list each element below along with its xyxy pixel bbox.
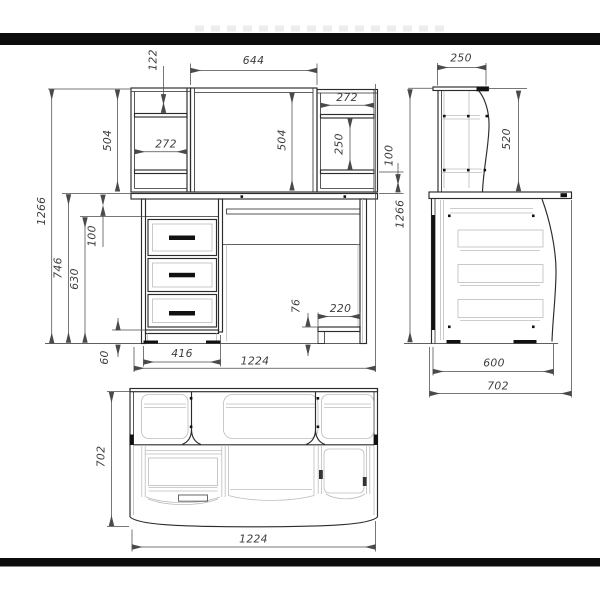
side-view: 250 520 1266 600 702	[394, 52, 572, 398]
side-desk-body	[404, 192, 572, 344]
drawer-handle	[169, 273, 195, 278]
plan-drawer-handle	[179, 495, 208, 501]
drawer-1	[148, 220, 217, 256]
dim-side-top-depth: 250	[450, 52, 472, 65]
dim-mirror-width: 644	[243, 54, 265, 67]
dim-left-shelf-height: 504	[101, 130, 114, 152]
dim-desk-height: 746	[52, 257, 65, 279]
foot	[514, 340, 537, 344]
plan-right-module	[318, 445, 370, 499]
mirror-curve	[479, 91, 490, 192]
dowel-mark	[344, 195, 347, 198]
drawer-handle	[169, 311, 195, 316]
dim-drawer-column-height: 630	[68, 268, 81, 290]
dim-side-total-depth: 702	[487, 380, 509, 393]
dim-drawer-top-offset: 100	[86, 225, 99, 247]
hinge-mark	[363, 477, 367, 486]
foot	[447, 340, 461, 344]
dim-side-body-depth: 600	[483, 357, 505, 370]
dim-desk-width: 1224	[241, 355, 270, 368]
dim-plinth-height: 60	[98, 350, 111, 364]
front-view: 122 644 272 504 272 504 250	[35, 49, 404, 372]
top-black-bar	[0, 33, 600, 45]
keyboard-tray	[227, 209, 361, 214]
bottom-black-bar	[0, 558, 600, 567]
dim-right-back-gap: 100	[383, 145, 396, 167]
drawer-3	[148, 295, 217, 328]
front-dimensions: 122 644 272 504 272 504 250	[35, 49, 404, 372]
side-dimensions: 250 520 1266 600 702	[394, 52, 572, 398]
body-curve	[542, 199, 556, 342]
dim-plan-depth: 702	[95, 446, 108, 468]
dowel-mark	[241, 195, 244, 198]
front-desk-body	[142, 199, 367, 344]
plan-dimensions: 702 1224	[95, 392, 376, 552]
plan-view: 702 1224	[95, 389, 379, 552]
mirror-panel-left	[182, 392, 201, 445]
dim-footrest-depth: 220	[330, 302, 352, 315]
drawer-handle	[169, 236, 195, 241]
dim-total-height: 1266	[35, 197, 48, 226]
mirror-panel-right	[306, 392, 325, 445]
blueprint-page: 122 644 272 504 272 504 250	[0, 0, 600, 600]
side-panel-section	[432, 215, 436, 330]
drawer-2	[148, 259, 217, 292]
desktop-front-curve	[130, 517, 378, 527]
dim-footrest-height: 76	[290, 299, 303, 313]
dim-left-shelf-inner-width: 272	[155, 138, 177, 151]
dim-plan-width: 1224	[239, 533, 268, 546]
plan-shelf-strip	[142, 392, 374, 445]
dim-drawer-unit-width: 416	[171, 347, 193, 360]
technical-drawing: 122 644 272 504 272 504 250	[0, 0, 600, 600]
footrest	[318, 327, 360, 344]
plan-knee-space	[229, 445, 315, 500]
dim-right-shelf-width: 272	[336, 91, 358, 104]
dim-side-top-height: 520	[500, 128, 513, 150]
dim-right-shelf-inner-height: 250	[333, 133, 346, 155]
front-mirror	[191, 88, 318, 192]
hinge-mark	[319, 470, 323, 479]
front-right-shelf-unit	[317, 90, 378, 193]
dim-mirror-height: 504	[276, 129, 289, 151]
side-upper-cabinet	[433, 87, 489, 193]
plan-drawer-module	[142, 445, 225, 505]
front-desk-top	[131, 194, 378, 200]
dim-side-total-height: 1266	[394, 200, 407, 229]
dim-top-shelf-gap: 122	[147, 49, 160, 71]
